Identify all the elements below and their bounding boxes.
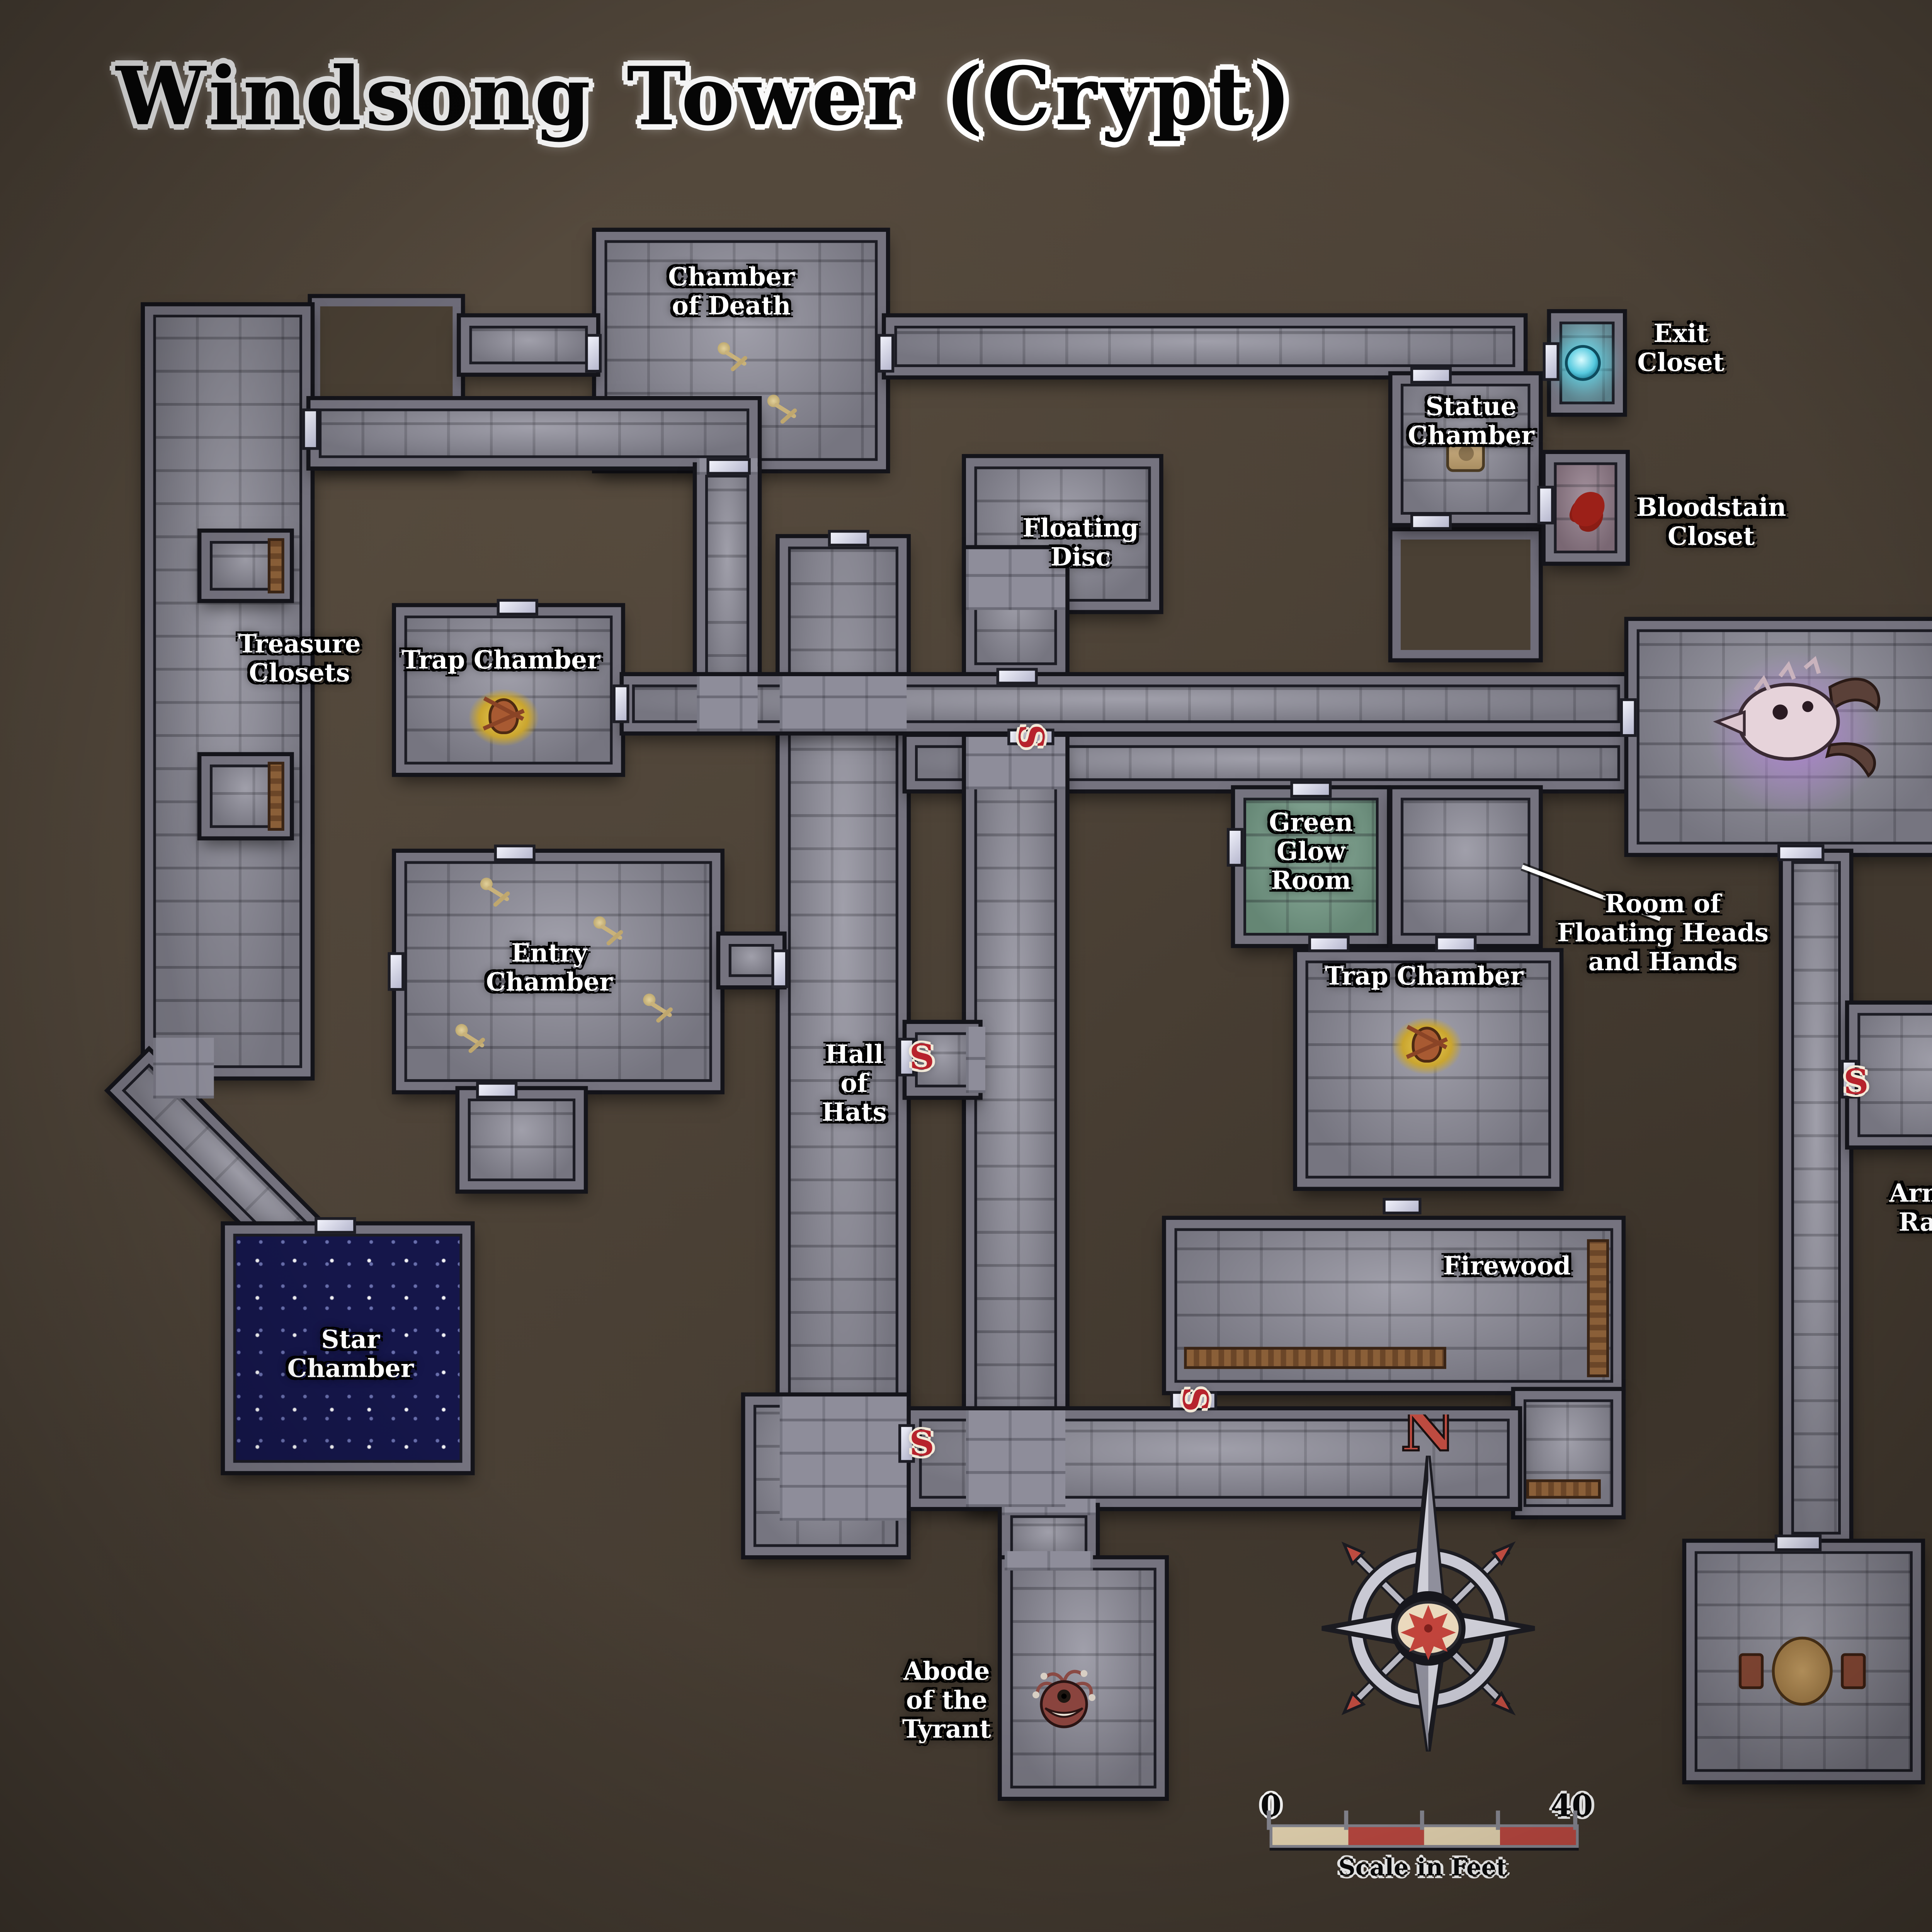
room-label: Chamber of Death xyxy=(668,263,794,322)
door xyxy=(585,334,602,372)
skeleton-icon xyxy=(456,1024,497,1057)
beholder-icon xyxy=(1024,1662,1104,1742)
door xyxy=(494,845,536,861)
door xyxy=(1227,828,1243,867)
room-label: Entry Chamber xyxy=(486,939,612,998)
sealed-block xyxy=(1393,531,1539,658)
junction xyxy=(697,676,758,731)
room-label: Armor Rack xyxy=(1889,1180,1932,1238)
junction xyxy=(966,1027,985,1093)
compass-north-label: N xyxy=(1401,1415,1456,1465)
door xyxy=(1620,698,1637,737)
room-label: Green Glow Room xyxy=(1269,809,1353,897)
door xyxy=(476,1082,517,1099)
corridor-chamber-east xyxy=(886,317,1524,375)
room-label: Bloodstain Closet xyxy=(1636,494,1786,553)
junction xyxy=(153,1038,214,1099)
room-label: Abode of the Tyrant xyxy=(902,1658,991,1746)
door xyxy=(1410,367,1452,384)
corridor-right-vertical xyxy=(1783,853,1849,1543)
chair-icon xyxy=(1739,1653,1764,1689)
door xyxy=(1777,845,1824,861)
glowing-disc-icon xyxy=(1565,345,1601,381)
door xyxy=(1383,1198,1422,1214)
skeleton-icon xyxy=(767,395,809,428)
room-label: Treasure Closets xyxy=(238,630,361,689)
scale-max-label: 40 xyxy=(1551,1789,1593,1825)
door xyxy=(613,684,629,723)
skeleton-icon xyxy=(718,342,759,376)
door xyxy=(997,668,1038,685)
door xyxy=(1435,935,1476,952)
door xyxy=(1290,781,1332,798)
room-label: Trap Chamber xyxy=(1325,963,1523,992)
skeleton-icon xyxy=(643,993,684,1027)
door xyxy=(1543,342,1560,381)
secret-door-marker: S xyxy=(1844,1062,1869,1102)
secret-door-marker: S xyxy=(1011,724,1051,750)
door xyxy=(388,952,405,991)
firewood-pile-icon xyxy=(1587,1239,1609,1377)
trap-creature-icon xyxy=(1412,1027,1442,1063)
room-label: Star Chamber xyxy=(287,1326,413,1384)
junction xyxy=(780,676,907,731)
door xyxy=(302,408,319,450)
door xyxy=(315,1217,356,1234)
junction xyxy=(1005,1551,1093,1570)
junction xyxy=(966,1410,1065,1507)
corridor-midleft xyxy=(311,400,758,466)
secret-door-marker: S xyxy=(909,1423,934,1464)
room-label: Firewood xyxy=(1443,1252,1571,1282)
secret-door-marker: S xyxy=(1175,1387,1215,1412)
shelf-icon xyxy=(268,762,284,831)
corridor-v1 xyxy=(697,466,758,698)
scale-caption: Scale in Feet xyxy=(1338,1855,1507,1882)
firewood-pile-icon xyxy=(1184,1347,1446,1369)
door xyxy=(828,530,869,546)
scale-tick xyxy=(1496,1811,1500,1830)
shelf-icon xyxy=(268,538,284,594)
skeleton-icon xyxy=(480,878,522,911)
dragon-skull-icon xyxy=(1708,646,1888,798)
trap-creature-icon xyxy=(488,698,519,734)
room-label: Room of Floating Heads and Hands xyxy=(1557,890,1769,978)
door xyxy=(1775,1534,1821,1551)
door xyxy=(497,599,538,616)
scale-tick xyxy=(1573,1811,1577,1830)
scale-tick xyxy=(1420,1811,1424,1830)
room-label: Exit Closet xyxy=(1637,320,1724,379)
room-label: Floating Disc xyxy=(1022,514,1138,573)
door xyxy=(1308,935,1350,952)
door xyxy=(1410,514,1452,530)
door xyxy=(1537,486,1554,524)
dungeon-map: Chamber of Death Exit Closet Statue Cham… xyxy=(0,0,1932,1932)
scale-tick xyxy=(1344,1811,1349,1830)
corridor-central-shaft xyxy=(966,737,1065,1507)
map-title: Windsong Tower (Crypt) xyxy=(116,50,1295,144)
chair-icon xyxy=(1841,1653,1866,1689)
corridor-chamber-west xyxy=(461,317,596,372)
room-left-gallery xyxy=(145,306,311,1077)
scale-tick xyxy=(1267,1811,1271,1830)
door xyxy=(878,334,894,372)
door xyxy=(707,458,751,475)
room-label: Hall of Hats xyxy=(822,1041,887,1129)
junction xyxy=(780,1396,907,1520)
compass-rose: N xyxy=(1297,1415,1560,1774)
room-label: Trap Chamber xyxy=(402,646,600,676)
corridor-main-east-west xyxy=(624,676,1628,731)
room-label: Statue Chamber xyxy=(1408,393,1534,452)
table-icon xyxy=(1772,1637,1833,1706)
room-entry-stub xyxy=(459,1090,583,1189)
door xyxy=(771,949,788,988)
secret-door-marker: S xyxy=(909,1037,934,1077)
